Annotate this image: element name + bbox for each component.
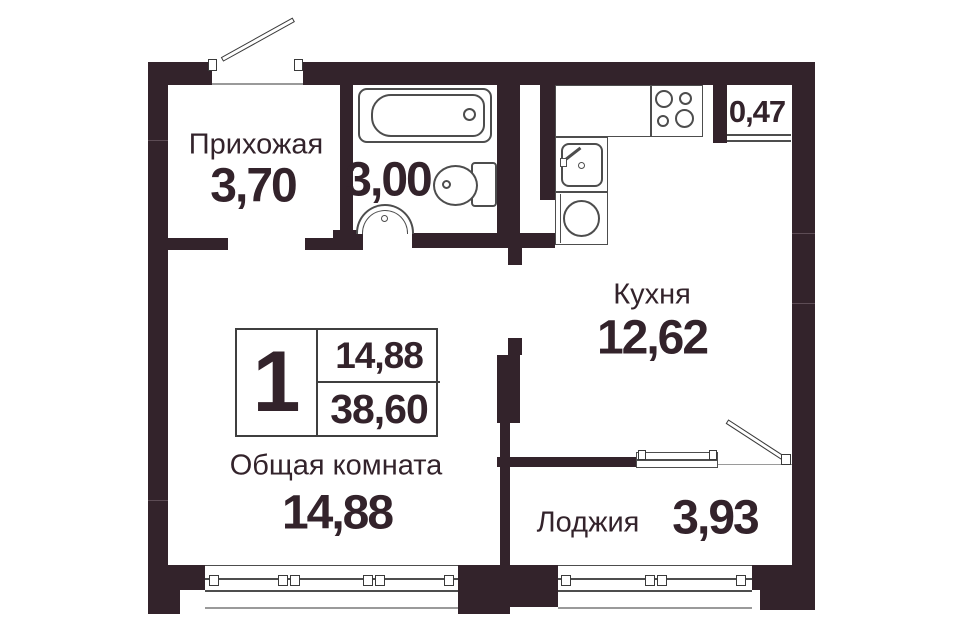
balcony-door-hinge	[781, 454, 791, 465]
wall-hallway-bottom	[168, 238, 228, 250]
hallway-label: Прихожая	[189, 129, 323, 162]
loggia-window-mullion	[636, 459, 718, 461]
wall-closet-left	[713, 81, 727, 143]
wall-mid-step-top	[508, 338, 522, 355]
wall-joint-tick	[792, 303, 815, 304]
closet-door-line	[727, 140, 791, 142]
wall-right	[792, 62, 815, 610]
living-window-sill	[205, 607, 458, 609]
wall-bottom-mid-step2	[510, 590, 558, 607]
hallway-area: 3,70	[210, 159, 295, 214]
wall-bottom-right-step	[760, 590, 815, 610]
window-handle	[363, 575, 373, 586]
wall-loggia-left	[500, 467, 510, 565]
window-handle	[561, 575, 571, 586]
wall-bathroom-right	[497, 85, 520, 248]
bathroom-area: 3,00	[345, 153, 430, 208]
washing-machine-drum	[563, 200, 600, 237]
loggia-label: Лоджия	[537, 507, 640, 540]
window-handle	[444, 575, 454, 586]
stove-burner-icon	[655, 90, 673, 108]
window-handle	[209, 575, 219, 586]
unit-info-box: 1 14,88 38,60	[235, 328, 438, 437]
window-handle	[290, 575, 300, 586]
loggia-bottom-window-sill	[558, 607, 752, 609]
wall-joint-tick	[148, 140, 168, 141]
unit-living-area: 14,88	[318, 330, 440, 381]
window-handle	[657, 575, 667, 586]
wall-bottom-right-pillar	[752, 565, 815, 590]
stove-burner-icon	[679, 92, 692, 105]
unit-rooms-count: 1	[237, 330, 316, 435]
wall-bathroom-bottom	[412, 233, 555, 248]
window-handle	[278, 575, 288, 586]
kitchen-label: Кухня	[613, 279, 691, 312]
closet-area: 0,47	[729, 94, 785, 130]
toilet-flush-dot	[442, 180, 451, 189]
entrance-threshold-line	[212, 83, 303, 85]
loggia-bottom-window-inner-line	[558, 565, 752, 566]
living-window-inner-line	[205, 565, 458, 566]
loggia-bottom-window-frame	[558, 578, 752, 580]
toilet-bowl-icon	[433, 165, 478, 206]
wall-bottom-mid-pillar	[458, 565, 558, 590]
wall-joint-tick	[792, 233, 815, 234]
kitchen-sink-drain	[578, 162, 585, 169]
unit-total-area: 38,60	[318, 383, 440, 435]
window-handle	[375, 575, 385, 586]
living-room-label: Общая комната	[230, 450, 443, 483]
wall-stub-below-bath	[508, 248, 522, 265]
loggia-window-cap	[638, 450, 646, 460]
window-handle	[645, 575, 655, 586]
washbasin-faucet-dot	[381, 215, 388, 222]
loggia-window-cap	[709, 450, 717, 460]
entrance-door-jamb	[208, 59, 217, 71]
window-handle	[736, 575, 746, 586]
closet-door-line	[727, 134, 791, 136]
living-window-frame	[205, 590, 458, 592]
kitchen-faucet-base	[560, 158, 567, 167]
entrance-door-jamb	[294, 59, 303, 71]
living-window-frame	[205, 578, 458, 580]
floor-plan: 1 14,88 38,60 Прихожая 3,70 3,00 0,47 Ку…	[0, 0, 960, 640]
entrance-door-leaf-icon	[221, 18, 295, 62]
wall-hallway-bottom-right	[305, 238, 333, 250]
wall-joint-tick	[148, 500, 168, 501]
loggia-area: 3,93	[672, 491, 757, 546]
bathtub-drain	[463, 108, 476, 121]
washing-machine-edge	[560, 194, 561, 243]
kitchen-counter-divider	[650, 85, 652, 137]
loggia-bottom-window-frame	[558, 590, 752, 592]
wall-living-kitchen	[497, 355, 520, 423]
stove-burner-icon	[675, 109, 694, 128]
kitchen-area: 12,62	[597, 311, 707, 366]
wall-left	[148, 62, 168, 565]
wall-bottom-left-pillar	[148, 565, 205, 590]
wall-top	[303, 62, 815, 85]
living-room-area: 14,88	[282, 486, 392, 541]
wall-kitchen-loggia	[497, 457, 637, 467]
stove-burner-icon	[657, 115, 669, 127]
wall-bottom-mid-step	[458, 590, 510, 614]
wall-bottom-left-step	[148, 590, 180, 614]
wall-shaft-right	[540, 85, 555, 200]
balcony-door-leaf-icon	[726, 419, 787, 461]
